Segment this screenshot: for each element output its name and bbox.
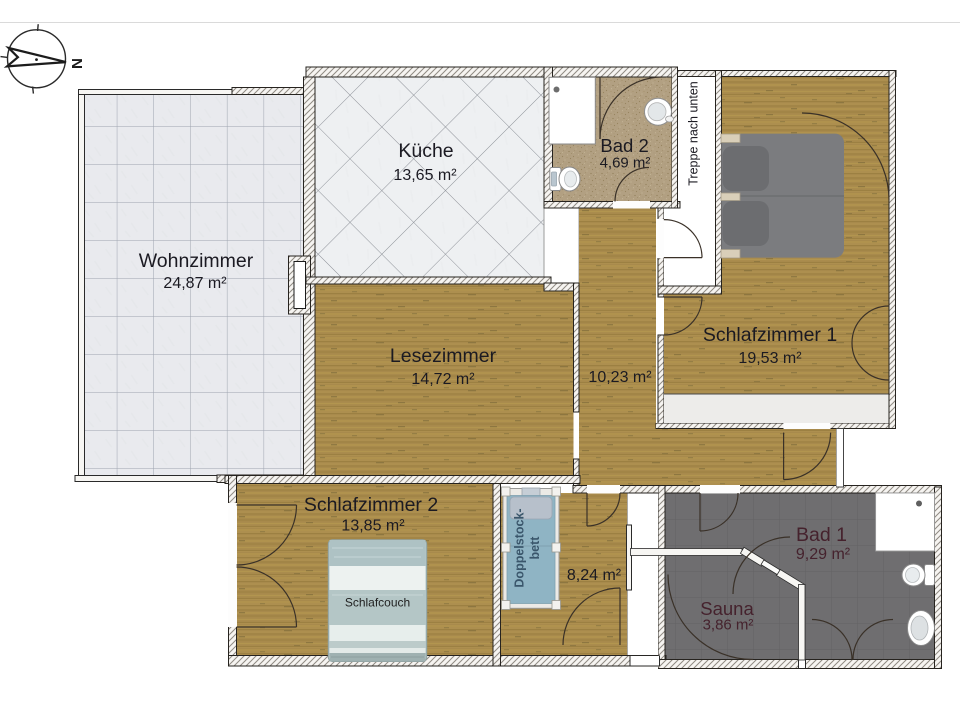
svg-text:4,69 m²: 4,69 m² bbox=[600, 155, 651, 172]
svg-text:Wohnzimmer: Wohnzimmer bbox=[139, 250, 254, 272]
svg-text:Bad 1: Bad 1 bbox=[796, 524, 847, 546]
svg-text:8,24 m²: 8,24 m² bbox=[567, 567, 622, 584]
svg-text:bett: bett bbox=[528, 536, 542, 560]
svg-text:3,86 m²: 3,86 m² bbox=[703, 617, 754, 634]
svg-text:Schlafzimmer 2: Schlafzimmer 2 bbox=[304, 494, 438, 516]
svg-text:Küche: Küche bbox=[398, 140, 453, 162]
svg-text:10,23 m²: 10,23 m² bbox=[588, 369, 652, 386]
svg-text:13,65 m²: 13,65 m² bbox=[393, 167, 457, 184]
svg-text:24,87 m²: 24,87 m² bbox=[163, 275, 227, 292]
svg-text:14,72 m²: 14,72 m² bbox=[411, 371, 475, 388]
svg-text:N: N bbox=[68, 58, 85, 69]
svg-text:Lesezimmer: Lesezimmer bbox=[390, 345, 497, 367]
svg-text:13,85 m²: 13,85 m² bbox=[341, 518, 405, 535]
svg-text:Schlafzimmer 1: Schlafzimmer 1 bbox=[703, 324, 837, 346]
svg-text:Treppe nach unten: Treppe nach unten bbox=[687, 81, 701, 186]
svg-text:Bad 2: Bad 2 bbox=[600, 135, 648, 156]
svg-text:Doppelstock-: Doppelstock- bbox=[513, 508, 527, 587]
svg-text:19,53 m²: 19,53 m² bbox=[738, 350, 802, 367]
svg-text:Schlafcouch: Schlafcouch bbox=[345, 596, 410, 610]
svg-text:9,29 m²: 9,29 m² bbox=[796, 546, 851, 563]
